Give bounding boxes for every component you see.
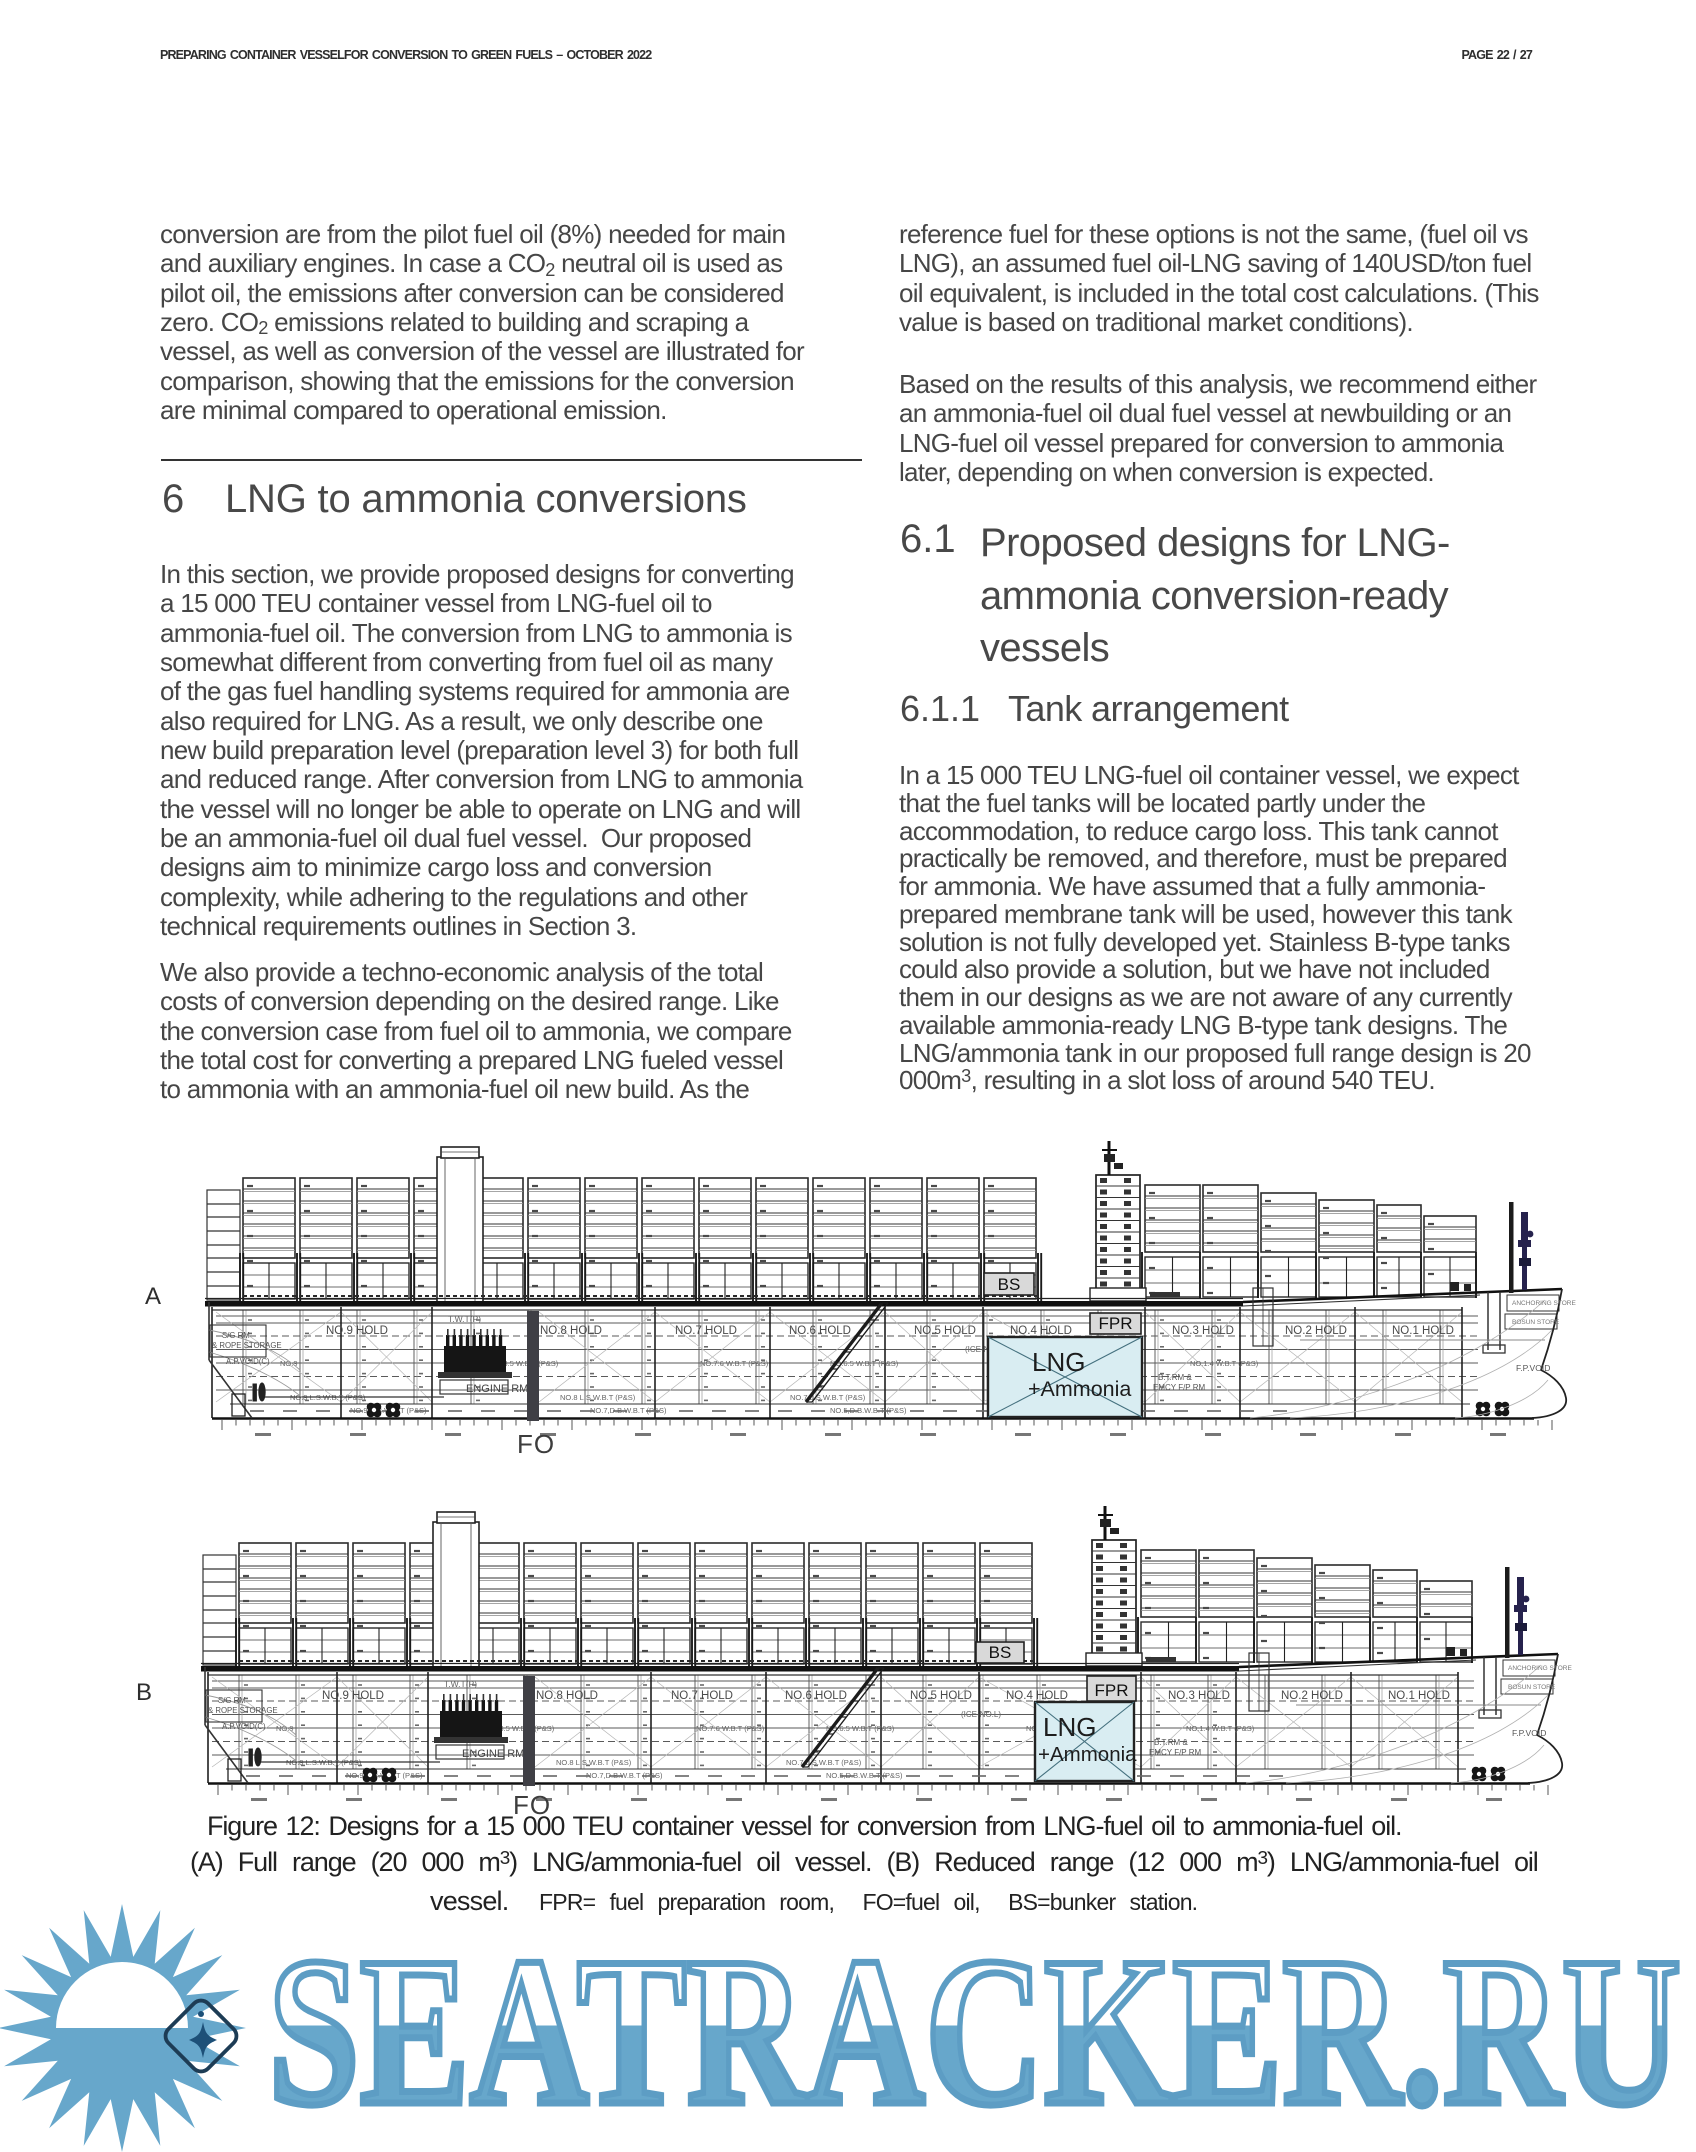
svg-text:LNG: LNG [1032,1347,1085,1377]
svg-text:B: B [136,1679,152,1706]
svg-text:+Ammonia: +Ammonia [1028,1377,1131,1401]
svg-text:LNG: LNG [1043,1712,1096,1742]
svg-text:FPR: FPR [1099,1314,1133,1333]
svg-text:FPR: FPR [1095,1681,1129,1700]
svg-text:SEATRACKER.RU: SEATRACKER.RU [268,1914,1681,2150]
svg-text:BS: BS [998,1275,1021,1294]
svg-text:FO: FO [517,1429,555,1459]
svg-text:+Ammonia: +Ammonia [1038,1743,1137,1766]
svg-text:BS: BS [989,1643,1012,1662]
svg-text:A: A [145,1283,161,1310]
